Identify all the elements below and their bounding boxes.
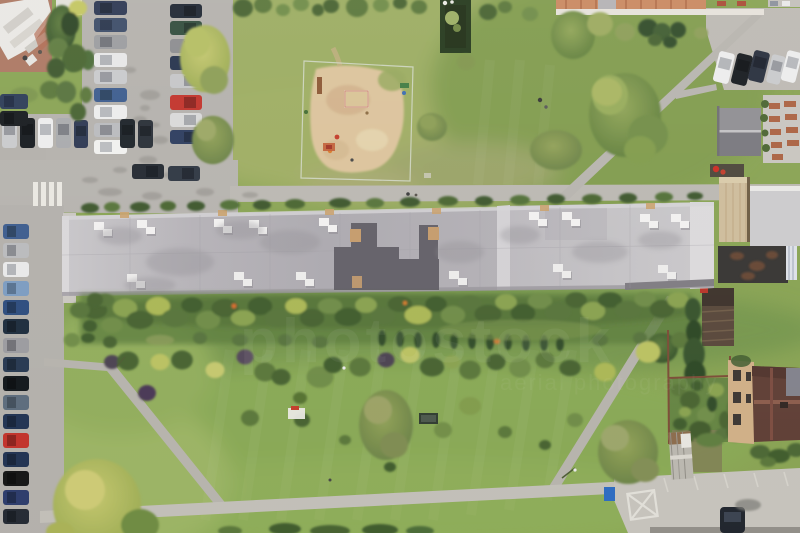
svg-text:aerial photography: aerial photography bbox=[500, 370, 718, 395]
svg-text:photostock: photostock bbox=[240, 307, 614, 376]
